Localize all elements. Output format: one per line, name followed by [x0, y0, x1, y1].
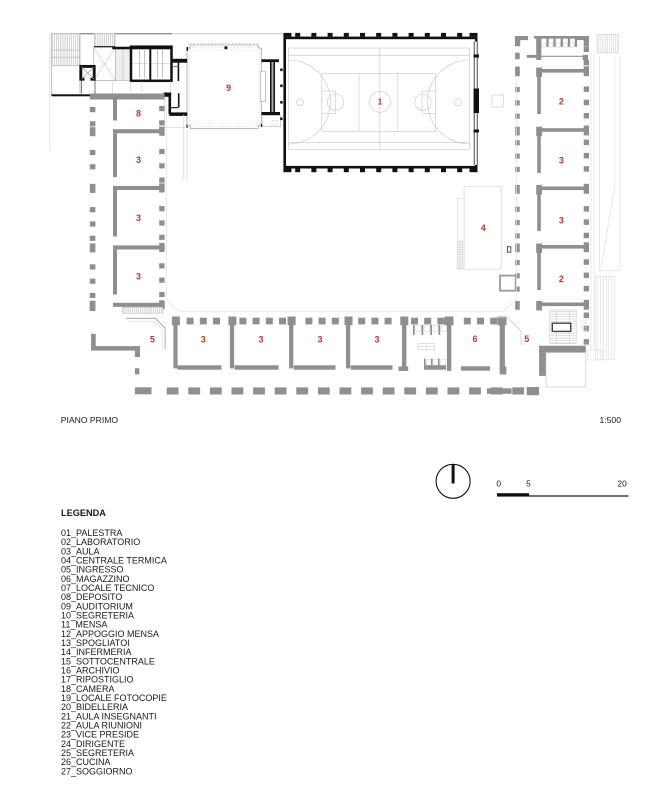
- svg-text:LEGENDA: LEGENDA: [61, 508, 106, 518]
- svg-text:3: 3: [559, 216, 564, 226]
- svg-text:5: 5: [524, 334, 529, 344]
- svg-text:3: 3: [374, 334, 379, 344]
- svg-text:3: 3: [201, 334, 206, 344]
- svg-text:PIANO PRIMO: PIANO PRIMO: [61, 415, 119, 425]
- svg-text:9: 9: [226, 83, 231, 93]
- svg-text:20: 20: [617, 478, 627, 488]
- svg-text:4: 4: [481, 223, 486, 233]
- svg-text:3: 3: [136, 155, 141, 165]
- svg-text:8: 8: [136, 109, 141, 119]
- svg-text:1: 1: [378, 97, 383, 107]
- svg-text:2: 2: [559, 97, 564, 107]
- svg-text:27_SOGGIORNO: 27_SOGGIORNO: [61, 766, 133, 776]
- svg-text:0: 0: [496, 478, 501, 488]
- svg-text:3: 3: [136, 213, 141, 223]
- svg-text:5: 5: [150, 334, 155, 344]
- svg-text:3: 3: [136, 271, 141, 281]
- svg-text:3: 3: [258, 334, 263, 344]
- svg-text:6: 6: [472, 334, 477, 344]
- svg-text:3: 3: [559, 156, 564, 166]
- svg-text:2: 2: [559, 274, 564, 284]
- svg-text:1:500: 1:500: [599, 415, 621, 425]
- svg-text:5: 5: [526, 478, 531, 488]
- svg-text:3: 3: [317, 334, 322, 344]
